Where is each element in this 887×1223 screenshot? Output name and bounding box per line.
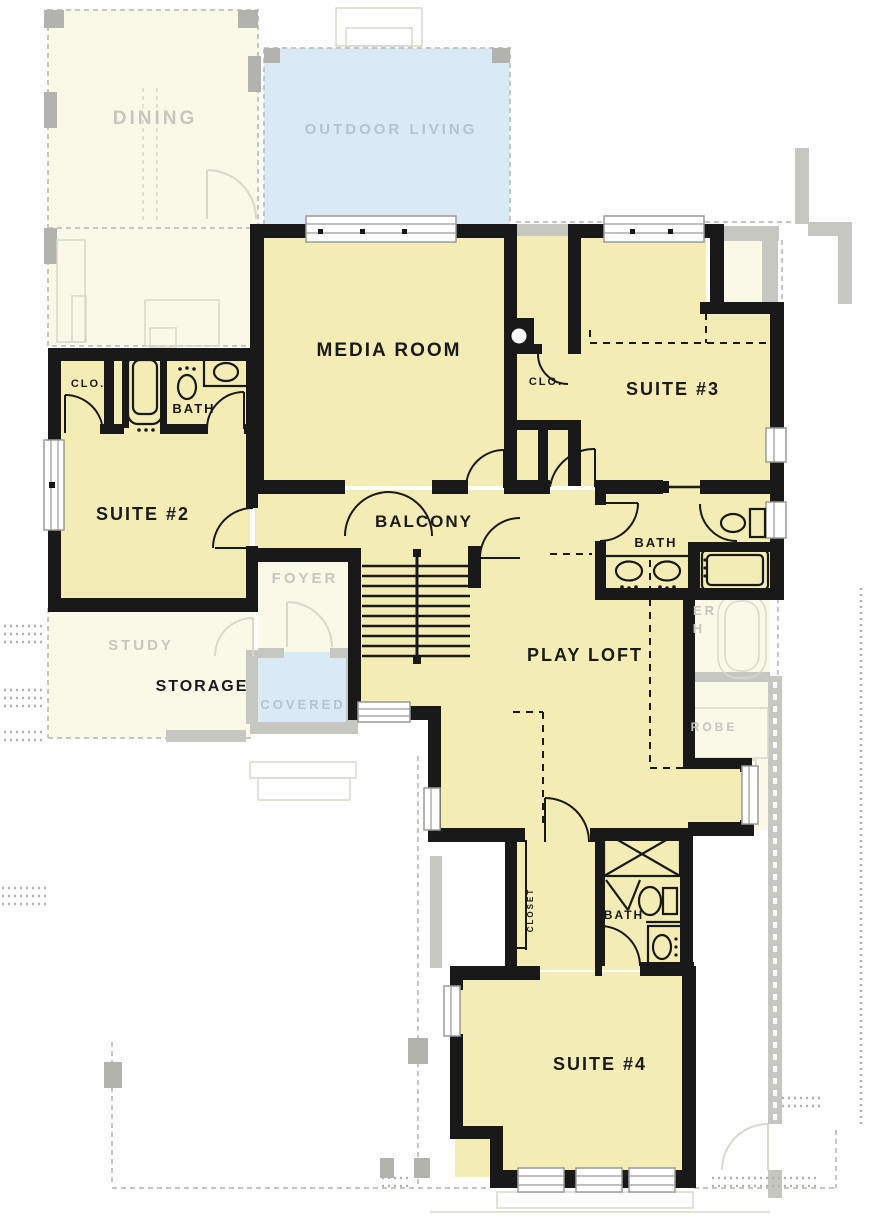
suite4-bottom-window-3 bbox=[629, 1168, 675, 1192]
room-suite3-upper bbox=[578, 236, 706, 306]
bath3-east-window bbox=[766, 502, 786, 538]
landing-window bbox=[358, 702, 410, 722]
floor-plan-page: DINING OUTDOOR LIVING MEDIA ROOM SUITE #… bbox=[0, 0, 887, 1223]
room-playloft-b bbox=[441, 700, 691, 832]
playloft-east-window bbox=[742, 766, 758, 824]
label-storage: STORAGE bbox=[156, 678, 249, 695]
ghost-room-covered-porch bbox=[257, 652, 349, 724]
column-marker bbox=[512, 329, 527, 344]
room-suite2-strip bbox=[56, 354, 250, 428]
label-clo-suite3: CLO. bbox=[529, 376, 563, 388]
label-outdoor-living: OUTDOOR LIVING bbox=[305, 121, 478, 138]
floor-plan-canvas: DINING OUTDOOR LIVING MEDIA ROOM SUITE #… bbox=[0, 0, 887, 1223]
ghost-room-outdoor-living bbox=[264, 48, 510, 228]
suite4-bottom-window-2 bbox=[576, 1168, 622, 1192]
label-fragment-h: H bbox=[693, 621, 705, 636]
label-clo-suite2: CLO. bbox=[71, 378, 105, 390]
suite4-bottom-window-1 bbox=[518, 1168, 564, 1192]
playloft-west-window bbox=[424, 788, 440, 830]
label-bath-suite2: BATH bbox=[172, 401, 215, 416]
label-play-loft: PLAY LOFT bbox=[527, 645, 643, 665]
label-fragment-robe: ROBE bbox=[691, 720, 738, 734]
label-foyer: FOYER bbox=[272, 570, 339, 587]
label-study: STUDY bbox=[108, 637, 174, 654]
label-bath-suite3: BATH bbox=[634, 535, 677, 550]
label-media-room: MEDIA ROOM bbox=[317, 340, 462, 361]
suite3-top-window bbox=[604, 216, 704, 242]
suite4-west-window bbox=[444, 986, 460, 1036]
room-suite4 bbox=[455, 972, 685, 1177]
label-suite2: SUITE #2 bbox=[96, 504, 190, 524]
label-dining: DINING bbox=[113, 108, 198, 129]
label-balcony: BALCONY bbox=[375, 512, 473, 531]
label-closet: CLOSET bbox=[526, 888, 535, 932]
label-bath-suite4: BATH bbox=[604, 908, 644, 922]
label-fragment-er: ER bbox=[693, 603, 717, 618]
label-suite3: SUITE #3 bbox=[626, 379, 720, 399]
media-window bbox=[306, 216, 456, 242]
suite3-east-window bbox=[766, 428, 786, 462]
label-covered: COVERED bbox=[260, 697, 345, 712]
label-suite4: SUITE #4 bbox=[553, 1054, 647, 1074]
ghost-room-study bbox=[48, 608, 255, 738]
staircase bbox=[362, 549, 470, 664]
